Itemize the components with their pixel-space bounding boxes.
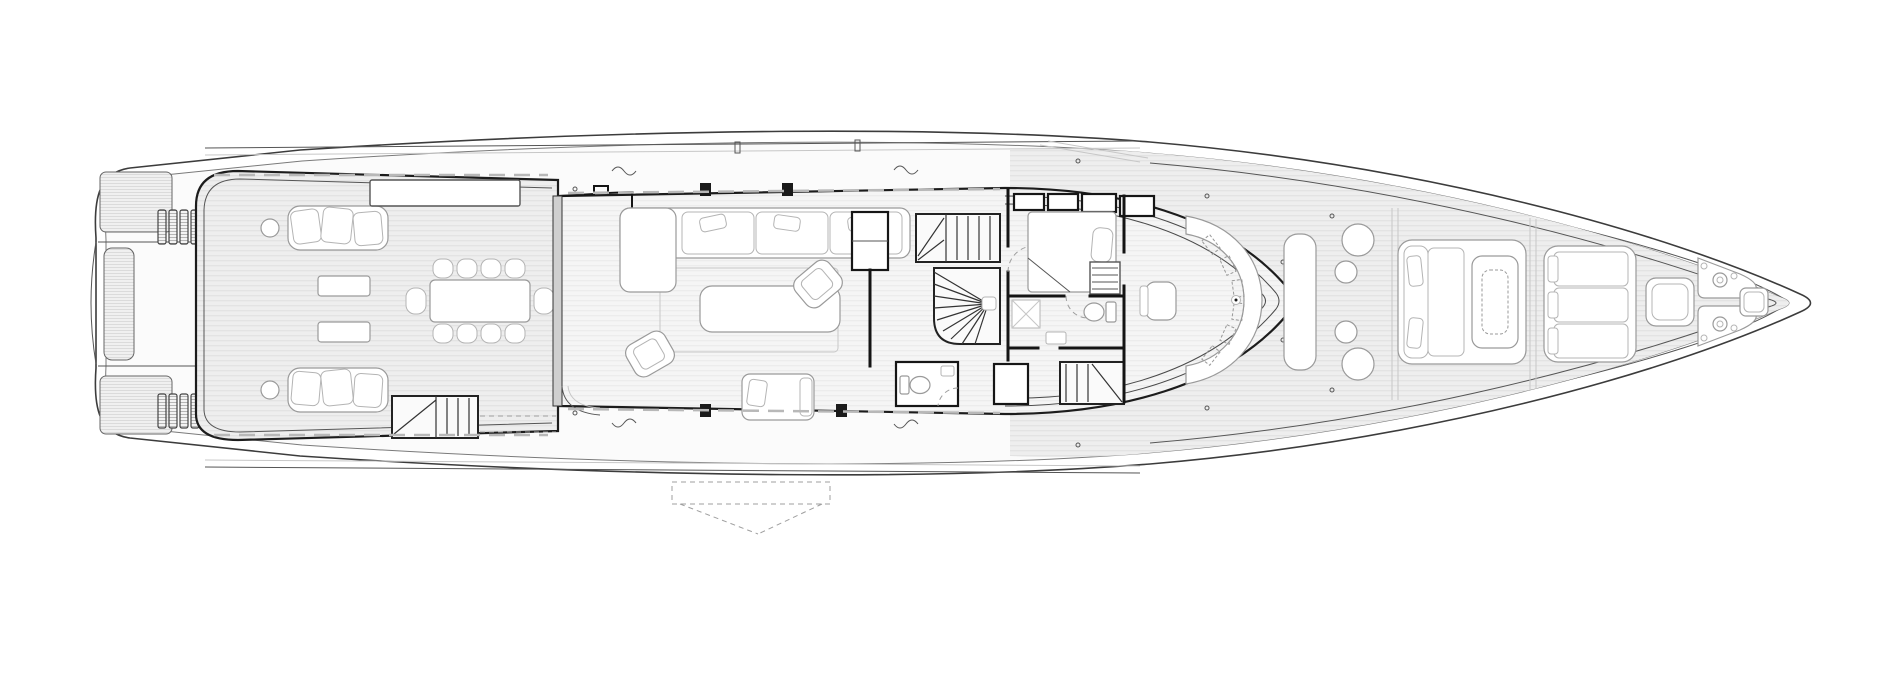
tender-door-swing bbox=[680, 504, 758, 534]
pouf bbox=[1335, 261, 1357, 283]
stern-stair-slat bbox=[180, 210, 188, 244]
aft-coffee-table bbox=[318, 322, 370, 342]
sunpad-pillow bbox=[1548, 292, 1558, 318]
lounge-pillow bbox=[1406, 317, 1423, 348]
dining-chair bbox=[505, 259, 525, 278]
mooring-cleat bbox=[1731, 325, 1737, 331]
deck-plan-drawing bbox=[0, 0, 1900, 700]
aft-sofa-cushion bbox=[290, 208, 322, 245]
cabin-wc-tank bbox=[1106, 302, 1116, 322]
aft-stair bbox=[392, 396, 478, 438]
aft-sofa-cushion bbox=[353, 373, 383, 408]
daybed-pillow bbox=[746, 379, 767, 407]
day-head-sink bbox=[941, 366, 954, 376]
tender-door-swing bbox=[758, 504, 822, 534]
dining-chair bbox=[534, 288, 554, 314]
stern-stair-slat bbox=[180, 394, 188, 428]
stern-stair-slat bbox=[169, 394, 177, 428]
windlass-capstan-hub bbox=[1717, 277, 1723, 283]
aft-side-table bbox=[261, 381, 279, 399]
sunpad-cushion bbox=[1554, 252, 1628, 286]
mooring-cleat bbox=[1701, 335, 1707, 341]
stair-down bbox=[1060, 362, 1124, 404]
lobby-cabinet bbox=[994, 364, 1028, 404]
helm-seat bbox=[1146, 282, 1176, 320]
pouf bbox=[1342, 348, 1374, 380]
stern-stair-slat bbox=[158, 394, 166, 428]
sunpad-cushion bbox=[1554, 324, 1628, 358]
roof-post bbox=[700, 183, 711, 196]
closet bbox=[1082, 194, 1116, 212]
aft-sofa-cushion bbox=[353, 211, 384, 246]
mooring-cleat bbox=[1701, 263, 1707, 269]
dining-chair bbox=[457, 324, 477, 343]
closet bbox=[1014, 194, 1044, 210]
dining-chair bbox=[433, 324, 453, 343]
aft-side-table bbox=[261, 219, 279, 237]
sunpad-cushion bbox=[1554, 288, 1628, 322]
stern-stair-slat bbox=[169, 210, 177, 244]
aft-sofa-cushion bbox=[320, 369, 353, 407]
fore-hatch-inner bbox=[1652, 284, 1688, 320]
dining-table bbox=[430, 280, 530, 322]
aft-sofa-cushion bbox=[291, 371, 322, 406]
platform-grate-mid bbox=[104, 248, 134, 360]
stair-up bbox=[916, 214, 1000, 262]
dining-chair bbox=[433, 259, 453, 278]
aft-coffee-table bbox=[318, 276, 370, 296]
mooring-cleat bbox=[1731, 273, 1737, 279]
windshield-backrest bbox=[1284, 234, 1316, 370]
day-head-wc-tank bbox=[900, 376, 909, 394]
dining-chair bbox=[481, 259, 501, 278]
yacht-deck-plan-canvas bbox=[0, 0, 1900, 700]
windlass-capstan-hub bbox=[1717, 321, 1723, 327]
lounge-seat bbox=[1428, 248, 1464, 356]
bow-hatch-inner bbox=[1744, 292, 1764, 312]
aft-sofa-cushion bbox=[320, 207, 353, 245]
day-head-wc bbox=[910, 377, 930, 394]
cabin-wc bbox=[1084, 303, 1104, 321]
sofa-pillow bbox=[773, 214, 801, 231]
cabin-sink bbox=[1046, 332, 1066, 344]
pouf bbox=[1342, 224, 1374, 256]
lounge-pillow bbox=[1406, 255, 1423, 286]
closet bbox=[1048, 194, 1078, 210]
spiral-hub bbox=[982, 297, 996, 310]
compass-dot bbox=[1235, 299, 1238, 302]
pouf bbox=[1335, 321, 1357, 343]
dining-chair bbox=[505, 324, 525, 343]
sideboard bbox=[370, 180, 520, 206]
salon-sofa-chaise bbox=[620, 208, 676, 292]
roof-post bbox=[782, 183, 793, 196]
sunpad-pillow bbox=[1548, 328, 1558, 354]
salon-aft-glazing bbox=[553, 196, 562, 406]
captain-pillow bbox=[1091, 227, 1114, 263]
tender-door-outline bbox=[672, 482, 830, 504]
dining-chair bbox=[457, 259, 477, 278]
dining-chair bbox=[406, 288, 426, 314]
stern-stair-slat bbox=[158, 210, 166, 244]
sunpad-pillow bbox=[1548, 256, 1558, 282]
helm-seat-back bbox=[1140, 286, 1148, 316]
dining-chair bbox=[481, 324, 501, 343]
